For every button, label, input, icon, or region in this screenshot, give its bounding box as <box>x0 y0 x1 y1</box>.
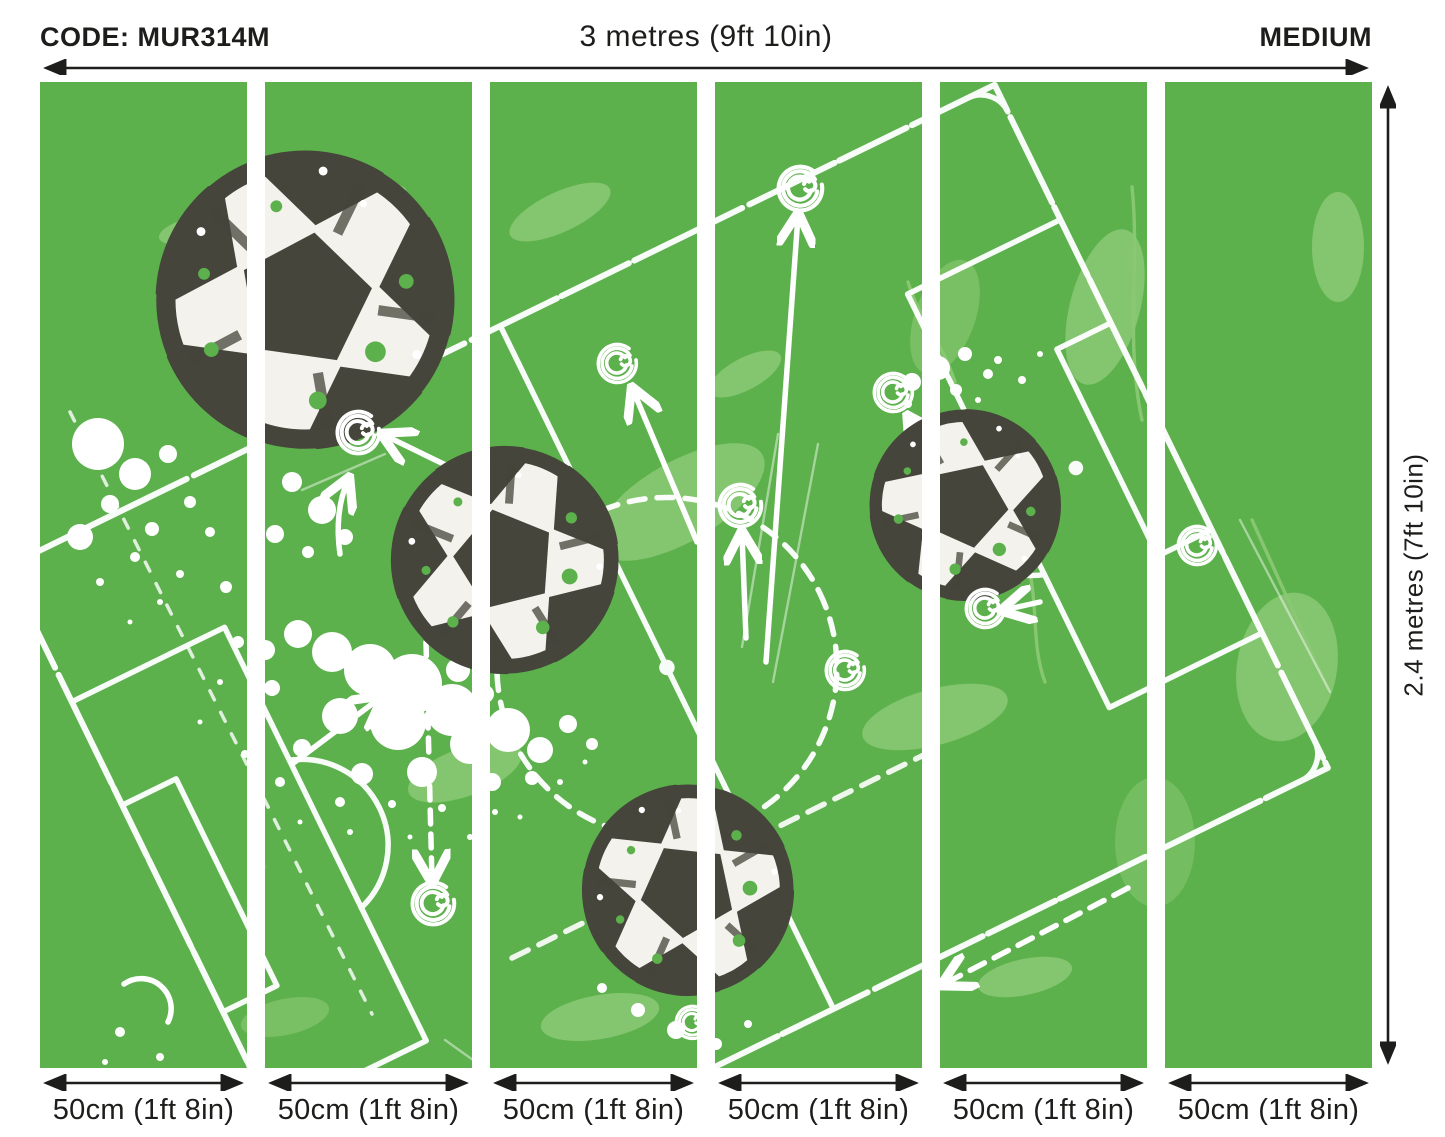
panel-width-dimension-1: 50cm (1ft 8in) <box>40 1074 247 1127</box>
double-arrow-icon <box>490 1074 697 1091</box>
panel-width-label: 50cm (1ft 8in) <box>728 1094 910 1127</box>
panel-width-dimension-3: 50cm (1ft 8in) <box>490 1074 697 1127</box>
panel-gap-4 <box>922 82 940 1068</box>
height-dimension-arrow-icon <box>1380 82 1396 1068</box>
panel-width-dimension-5: 50cm (1ft 8in) <box>940 1074 1147 1127</box>
panel-gap-1 <box>247 82 265 1068</box>
double-arrow-icon <box>715 1074 922 1091</box>
panel-gap-2 <box>472 82 490 1068</box>
width-dimension-arrow-icon <box>40 59 1372 75</box>
panel-width-dimension-2: 50cm (1ft 8in) <box>265 1074 472 1127</box>
double-arrow-icon <box>1165 1074 1372 1091</box>
panel-width-label: 50cm (1ft 8in) <box>278 1094 460 1127</box>
panel-width-dimension-6: 50cm (1ft 8in) <box>1165 1074 1372 1127</box>
total-height-label: 2.4 metres (7ft 10in) <box>1399 453 1430 696</box>
panel-width-label: 50cm (1ft 8in) <box>503 1094 685 1127</box>
panel-width-label: 50cm (1ft 8in) <box>1178 1094 1360 1127</box>
panel-dimensions-row: 50cm (1ft 8in) 50cm (1ft 8in) 50cm (1ft … <box>40 1074 1372 1127</box>
double-arrow-icon <box>265 1074 472 1091</box>
panel-width-dimension-4: 50cm (1ft 8in) <box>715 1074 922 1127</box>
panel-width-label: 50cm (1ft 8in) <box>953 1094 1135 1127</box>
panel-width-label: 50cm (1ft 8in) <box>53 1094 235 1127</box>
panel-gap-3 <box>697 82 715 1068</box>
double-arrow-icon <box>940 1074 1147 1091</box>
size-badge: MEDIUM <box>40 22 1372 53</box>
wallpaper-spec-sheet: CODE: MUR314M 3 metres (9ft 10in) MEDIUM… <box>0 0 1445 1137</box>
mural-preview <box>40 82 1372 1068</box>
double-arrow-icon <box>40 1074 247 1091</box>
panel-gap-5 <box>1147 82 1165 1068</box>
